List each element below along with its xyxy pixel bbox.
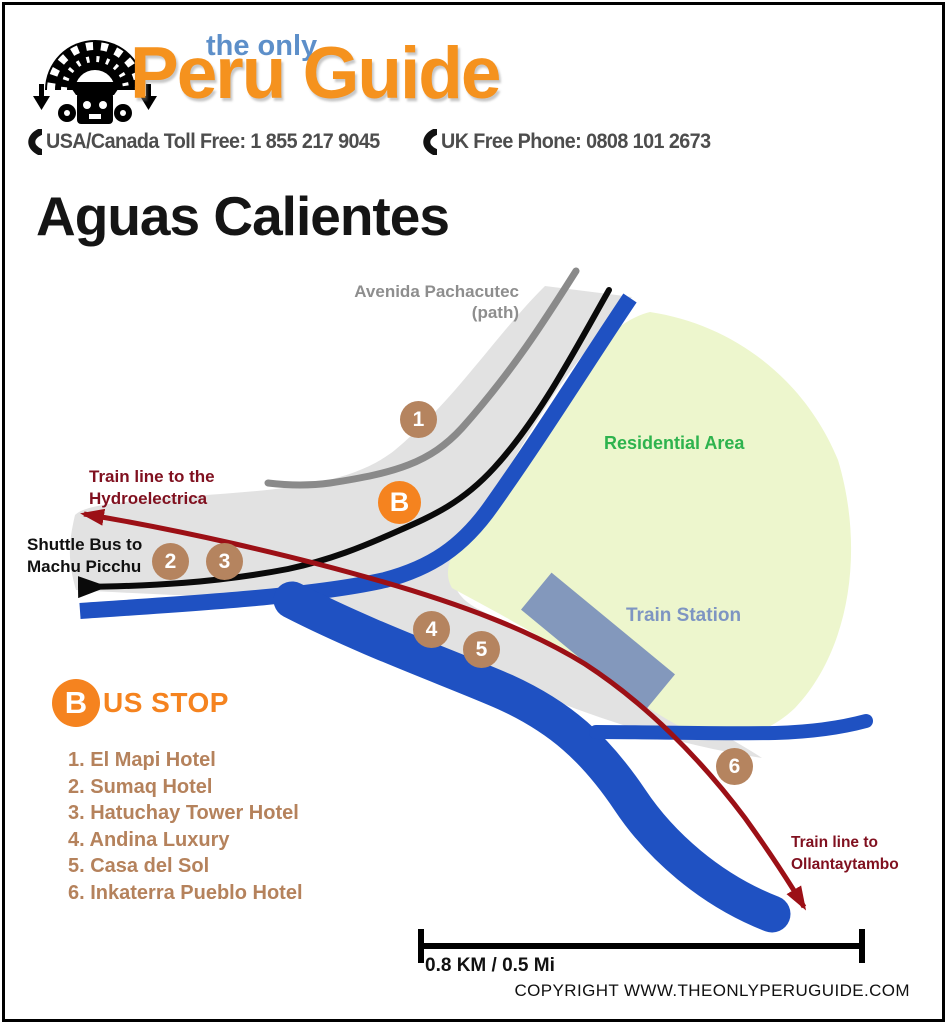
phone-row: USA/Canada Toll Free: 1 855 217 9045 UK … [26,129,742,155]
scale-bar-line [418,943,865,949]
scale-bar-right-tick [859,929,865,963]
copyright-text: COPYRIGHT WWW.THEONLYPERUGUIDE.COM [515,981,911,1001]
marker-1: 1 [400,401,437,438]
scale-label: 0.8 KM / 0.5 Mi [425,955,555,977]
marker-3: 3 [206,543,243,580]
marker-5: 5 [463,631,500,668]
marker-4: 4 [413,611,450,648]
phone-usa-text: USA/Canada Toll Free: 1 855 217 9045 [46,130,380,154]
label-train-station: Train Station [626,605,741,626]
bus-stop-marker: B [378,481,421,524]
legend-bus-stop-label: US STOP [103,687,229,719]
page-title: Aguas Calientes [36,184,449,248]
legend-bus-stop-badge: B [52,679,100,727]
brand-title: Peru Guide [130,36,499,113]
label-train-line-ollantaytambo: Train line to Ollantaytambo [791,832,899,876]
hotel-legend-list: 1. El Mapi Hotel 2. Sumaq Hotel 3. Hatuc… [68,747,303,906]
marker-6: 6 [716,748,753,785]
phone-uk-text: UK Free Phone: 0808 101 2673 [441,130,711,154]
hotel-list-item: 4. Andina Luxury [68,827,303,854]
phone-usa: USA/Canada Toll Free: 1 855 217 9045 [26,129,401,155]
label-avenida-pachacutec: Avenida Pachacutec (path) [354,281,519,323]
hotel-list-item: 6. Inkaterra Pueblo Hotel [68,880,303,907]
hotel-list-item: 5. Casa del Sol [68,853,303,880]
phone-icon [421,129,437,155]
hotel-list-item: 1. El Mapi Hotel [68,747,303,774]
label-train-line-hydroelectrica: Train line to the Hydroelectrica [89,466,215,510]
hotel-list-item: 2. Sumaq Hotel [68,774,303,801]
label-shuttle-bus: Shuttle Bus to Machu Picchu [27,534,142,578]
label-residential-area: Residential Area [604,433,744,454]
phone-uk: UK Free Phone: 0808 101 2673 [421,129,728,155]
phone-icon [26,129,42,155]
hotel-list-item: 3. Hatuchay Tower Hotel [68,800,303,827]
marker-2: 2 [152,543,189,580]
